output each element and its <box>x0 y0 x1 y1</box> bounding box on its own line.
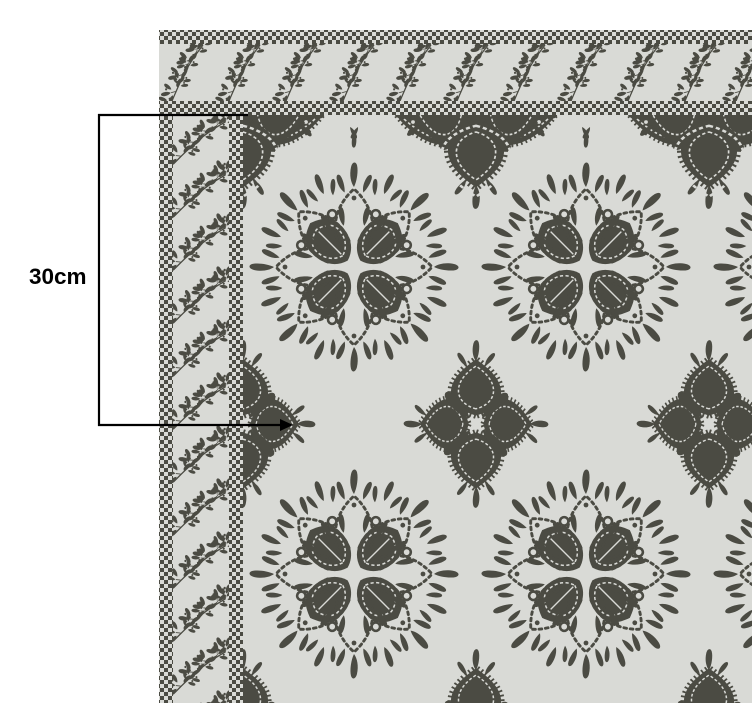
svg-text:30cm: 30cm <box>29 264 87 289</box>
